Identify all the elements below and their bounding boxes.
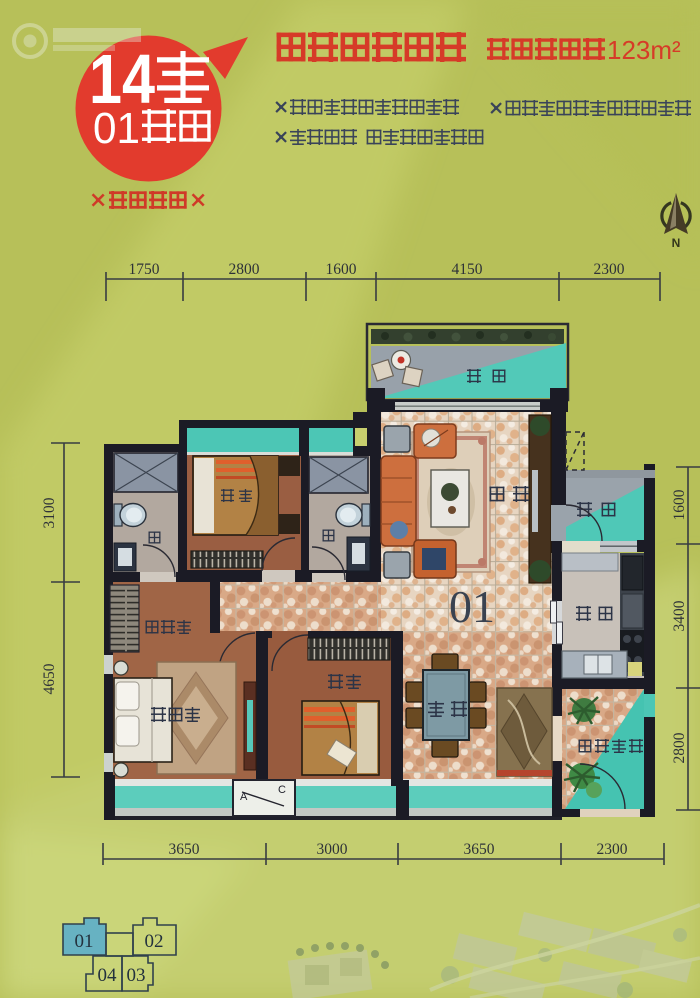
svg-text:2800: 2800 xyxy=(671,732,688,763)
svg-text:4650: 4650 xyxy=(41,663,58,694)
svg-text:3000: 3000 xyxy=(317,841,348,858)
svg-text:C: C xyxy=(278,784,286,796)
svg-text:1750: 1750 xyxy=(129,261,160,278)
svg-text:1600: 1600 xyxy=(671,489,688,520)
svg-text:1600: 1600 xyxy=(326,261,357,278)
svg-text:123m²: 123m² xyxy=(607,35,681,65)
svg-text:3650: 3650 xyxy=(464,841,495,858)
svg-text:3100: 3100 xyxy=(41,497,58,528)
svg-text:01: 01 xyxy=(75,931,94,952)
svg-text:3400: 3400 xyxy=(671,600,688,631)
svg-text:04: 04 xyxy=(98,965,118,986)
svg-text:2800: 2800 xyxy=(229,261,260,278)
svg-text:03: 03 xyxy=(127,965,146,986)
svg-text:A: A xyxy=(240,791,248,803)
svg-text:02: 02 xyxy=(145,931,164,952)
svg-text:2300: 2300 xyxy=(597,841,628,858)
svg-text:2300: 2300 xyxy=(594,261,625,278)
svg-text:01: 01 xyxy=(93,104,140,153)
svg-text:01: 01 xyxy=(449,581,495,632)
svg-text:N: N xyxy=(672,236,681,250)
svg-text:3650: 3650 xyxy=(169,841,200,858)
svg-text:4150: 4150 xyxy=(452,261,483,278)
